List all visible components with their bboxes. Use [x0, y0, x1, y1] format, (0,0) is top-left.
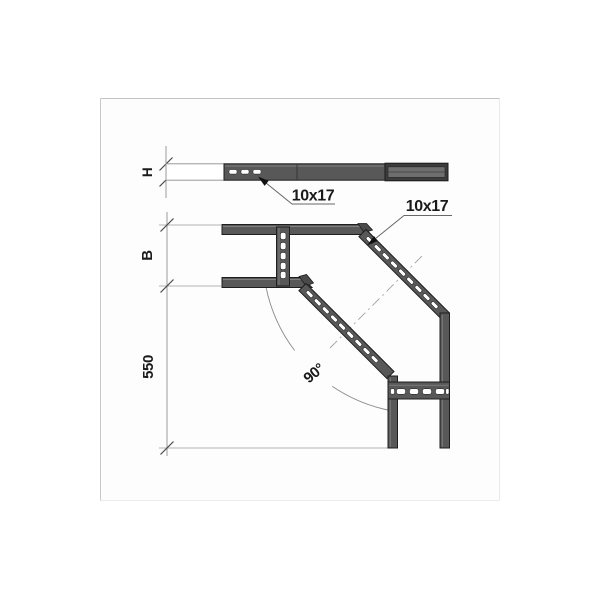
outer-diagonal-slots [365, 236, 438, 309]
drawing-canvas: H [0, 0, 600, 600]
side-view: H [140, 146, 448, 205]
rail-connector [385, 163, 448, 181]
rung-slots [280, 233, 286, 279]
dim-label-b: B [139, 250, 156, 261]
dim-label-550: 550 [140, 355, 157, 379]
bottom-rail [222, 278, 312, 288]
side-rail-slots [229, 170, 261, 175]
horizontal-leg [222, 225, 371, 288]
dimension-550: 550 [140, 355, 391, 454]
slot-callout-plan: 10x17 [367, 198, 452, 246]
callout-label-side: 10x17 [292, 188, 335, 205]
dim-label-angle: 90° [300, 360, 328, 387]
dimension-b: B [139, 212, 221, 456]
right-rail [440, 313, 450, 448]
plan-view: B 550 90° [139, 198, 452, 456]
inner-diagonal-slots [305, 290, 378, 363]
top-rail [222, 225, 371, 235]
dim-label-h: H [140, 168, 155, 177]
technical-drawing: H [0, 0, 600, 600]
diagonal-leg [299, 224, 450, 379]
callout-label-plan: 10x17 [406, 198, 449, 215]
side-rail [166, 163, 448, 181]
rail-end-plain [166, 164, 224, 180]
vertical-leg [388, 313, 450, 448]
